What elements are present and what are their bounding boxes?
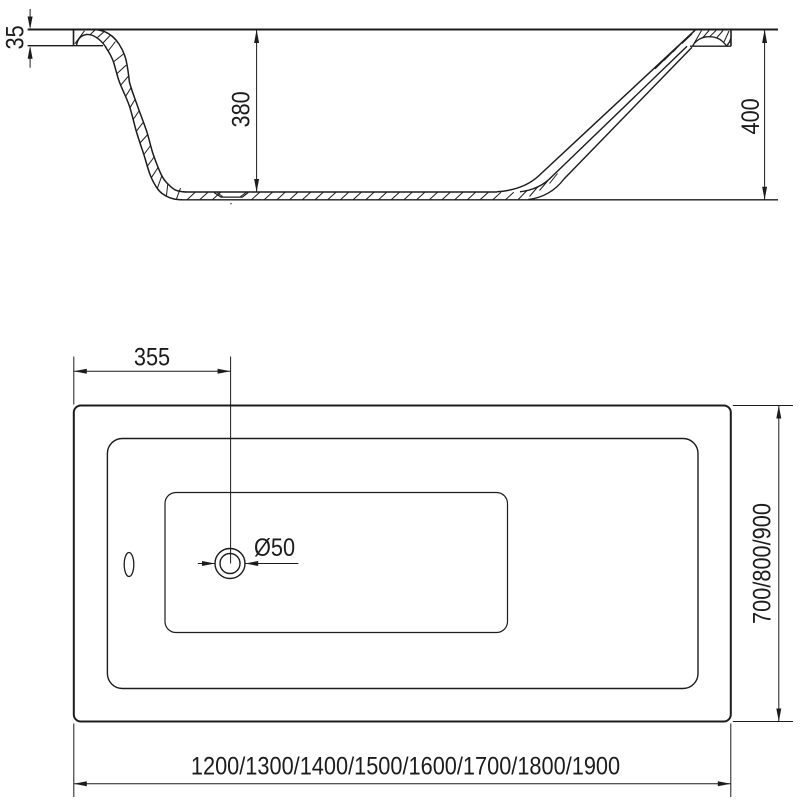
svg-text:380: 380 bbox=[227, 91, 255, 127]
svg-text:Ø50: Ø50 bbox=[254, 534, 295, 562]
svg-text:700/800/900: 700/800/900 bbox=[748, 503, 776, 624]
svg-text:355: 355 bbox=[134, 343, 170, 371]
svg-text:1200/1300/1400/1500/1600/1700/: 1200/1300/1400/1500/1600/1700/1800/1900 bbox=[191, 752, 620, 780]
svg-text:400: 400 bbox=[737, 98, 765, 134]
svg-text:35: 35 bbox=[1, 25, 29, 49]
